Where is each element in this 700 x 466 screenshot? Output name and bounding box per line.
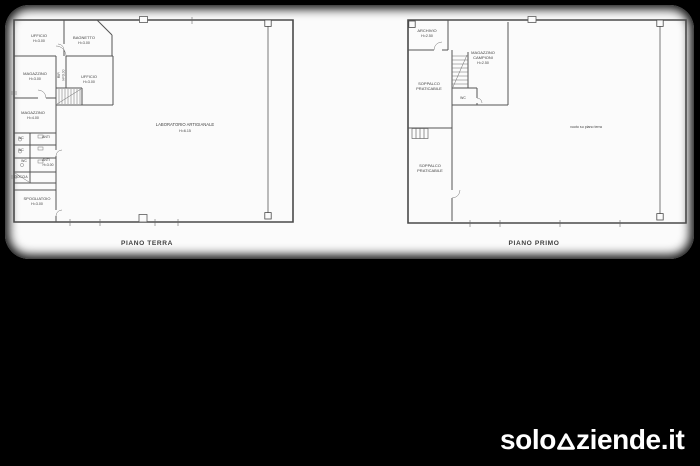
room-height-magazzino-1: H=3.00 [29,77,41,81]
room-label-magazzino-1: MAGAZZINO [23,71,47,76]
room-label-vuoto: vuoto su piano terra [570,125,602,129]
logo-text-suffix: ziende.it [576,424,684,456]
column-marker [265,213,271,219]
floor-plan-piano-primo: ARCHIVIO H=2.50 MAGAZZINO CAMPIONI H=2.5… [408,17,686,248]
room-label-spogliatoio: SPOGLIATOIO [24,196,51,201]
room-label-wc: WC [460,96,466,100]
room-label-archivio: ARCHIVIO [417,28,436,33]
interior-walls [14,20,113,222]
door-swings [434,42,482,198]
room-label-wc-3: WC [21,159,27,163]
column-marker [409,21,415,27]
ladder-hatch-icon [412,129,428,139]
wall-opening-marker [139,215,147,223]
room-label-wc-2: WC [18,148,24,152]
stairs-icon [57,89,81,104]
room-height-archivio: H=2.50 [421,34,433,38]
room-label-wc-1: WC [18,136,24,140]
room-label-anti-2: ANTI [42,158,50,162]
wall-opening-marker [528,17,536,23]
room-height-ufficio-top: H=3.00 [33,39,45,43]
room-label-magazzino-2: MAGAZZINO [21,110,45,115]
column-marker [657,214,663,220]
column-marker [657,20,663,26]
triangle-a-icon [557,433,575,450]
room-height-bagnetto: H=3.00 [78,41,90,45]
room-height-laboratorio: H=6.15 [179,129,191,133]
room-label-soppalco-sup-2: PRATICABILE [416,86,442,91]
room-label-rip: RIP. [57,72,61,78]
floor-plan-piano-terra: UFFICIO H=3.00 BAGNETTO H=3.00 MAGAZZINO… [11,17,293,248]
stairs-icon [452,55,468,87]
room-height-rip: H=3.00 [62,69,66,80]
room-height-anti-2: H=3.00 [42,163,53,167]
room-label-doccia: DOCCIA [14,175,28,179]
listing-photo-canvas: UFFICIO H=3.00 BAGNETTO H=3.00 MAGAZZINO… [0,0,700,466]
room-height-magazzino-2: H=4.00 [27,116,39,120]
caption-piano-terra: PIANO TERRA [121,240,173,247]
room-label-ufficio-top: UFFICIO [31,33,47,38]
column-marker [265,20,271,26]
room-label-anti-1: ANTI [42,135,50,139]
soloaziende-logo: solo ziende.it [500,424,684,456]
outer-walls [408,20,686,223]
logo-text-prefix: solo [500,424,556,456]
wall-opening-marker [140,17,148,23]
caption-piano-primo: PIANO PRIMO [509,240,560,247]
room-label-laboratorio: LABORATORIO ARTIGIANALE [156,122,215,127]
room-height-magazzino-campioni: H=2.50 [477,61,489,65]
room-label-magazzino-campioni-2: CAMPIONI [473,55,493,60]
room-label-bagnetto: BAGNETTO [73,35,95,40]
floor-plans-drawing: UFFICIO H=3.00 BAGNETTO H=3.00 MAGAZZINO… [0,0,700,266]
room-height-spogliatoio: H=3.00 [31,202,43,206]
room-height-ufficio-2: H=3.00 [83,80,95,84]
room-label-soppalco-inf-2: PRATICABILE [417,168,443,173]
room-label-ufficio-2: UFFICIO [81,74,97,79]
